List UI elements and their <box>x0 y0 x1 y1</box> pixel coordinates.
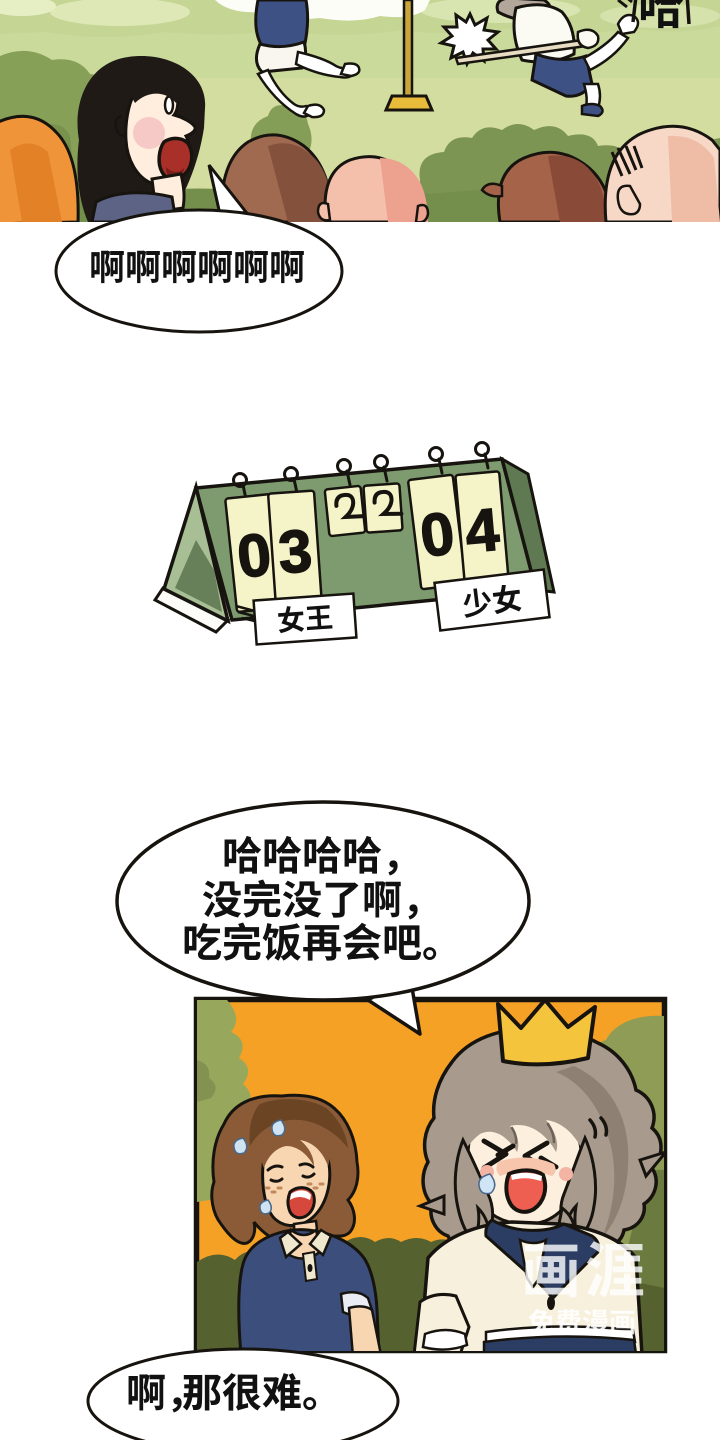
svg-text:3: 3 <box>276 517 314 586</box>
svg-text:0: 0 <box>234 520 274 590</box>
svg-text:4: 4 <box>463 496 503 566</box>
